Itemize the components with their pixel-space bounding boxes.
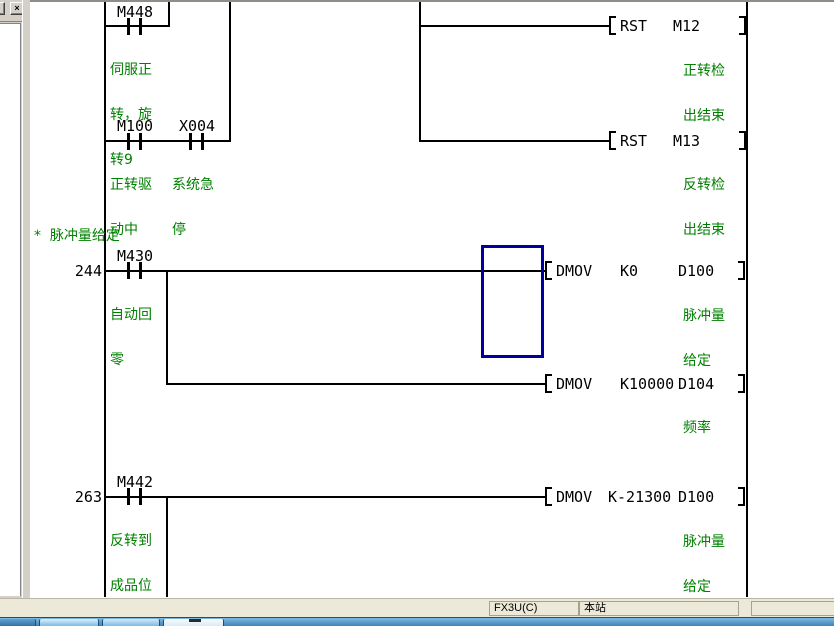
contact-bar bbox=[127, 262, 130, 279]
rung-comment: * 脉冲量给定 bbox=[34, 229, 120, 244]
status-pane-station: 本站 bbox=[579, 601, 739, 616]
dest-operand: D100 bbox=[678, 262, 714, 280]
wire bbox=[168, 2, 170, 27]
open-bracket bbox=[545, 487, 552, 506]
device-comment: 频率 bbox=[683, 391, 711, 466]
left-power-rail bbox=[104, 2, 106, 597]
device-comment: 反转检 出结束 bbox=[683, 148, 725, 268]
device-name: M448 bbox=[105, 3, 165, 21]
wire bbox=[104, 496, 545, 498]
contact-bar bbox=[139, 262, 142, 279]
close-bracket bbox=[739, 131, 746, 150]
right-power-rail bbox=[746, 2, 748, 597]
dest-operand: D100 bbox=[678, 488, 714, 506]
device-comment: 自动回 零 bbox=[110, 278, 152, 398]
status-pane-plc-type: FX3U(C) bbox=[489, 601, 579, 616]
wire bbox=[104, 270, 545, 272]
screen: { "window": { "close_icon": "×" }, "ladd… bbox=[0, 0, 834, 625]
editor-top-border bbox=[30, 0, 834, 2]
device-name: M442 bbox=[105, 473, 165, 491]
device-comment: 系统急 停 bbox=[172, 148, 214, 268]
operand: M12 bbox=[673, 17, 700, 35]
open-bracket bbox=[609, 131, 616, 150]
device-name: M430 bbox=[105, 247, 165, 265]
wire bbox=[229, 2, 231, 142]
wire bbox=[419, 140, 609, 142]
selection-cursor[interactable] bbox=[481, 245, 544, 358]
open-bracket bbox=[545, 374, 552, 393]
step-number-263: 263 bbox=[60, 488, 102, 506]
wire bbox=[166, 270, 168, 385]
mnemonic: RST bbox=[620, 132, 647, 150]
wire bbox=[166, 496, 168, 597]
device-name: M100 bbox=[105, 117, 165, 135]
close-bracket bbox=[738, 261, 745, 280]
wire bbox=[166, 383, 545, 385]
contact-bar bbox=[127, 488, 130, 505]
taskbar-app-icon bbox=[189, 619, 201, 622]
left-dock-panel: × bbox=[0, 0, 30, 598]
close-bracket bbox=[739, 16, 746, 35]
status-pane-extra bbox=[751, 601, 834, 616]
source-operand: K-21300 bbox=[608, 488, 671, 506]
dock-pin-button[interactable] bbox=[0, 2, 5, 15]
mnemonic: DMOV bbox=[556, 375, 592, 393]
source-operand: K0 bbox=[620, 262, 638, 280]
step-number-244: 244 bbox=[60, 262, 102, 280]
close-bracket bbox=[738, 487, 745, 506]
open-bracket bbox=[609, 16, 616, 35]
wire bbox=[419, 2, 421, 142]
open-bracket bbox=[545, 261, 552, 280]
dock-divider bbox=[0, 21, 23, 22]
device-name: X004 bbox=[167, 117, 227, 135]
mnemonic: DMOV bbox=[556, 262, 592, 280]
mnemonic: DMOV bbox=[556, 488, 592, 506]
source-operand: K10000 bbox=[620, 375, 674, 393]
wire bbox=[104, 25, 170, 27]
mnemonic: RST bbox=[620, 17, 647, 35]
contact-bar bbox=[139, 488, 142, 505]
wire bbox=[419, 25, 609, 27]
status-bar: FX3U(C) 本站 bbox=[0, 598, 834, 618]
close-bracket bbox=[738, 374, 745, 393]
dock-list-area bbox=[0, 23, 21, 596]
